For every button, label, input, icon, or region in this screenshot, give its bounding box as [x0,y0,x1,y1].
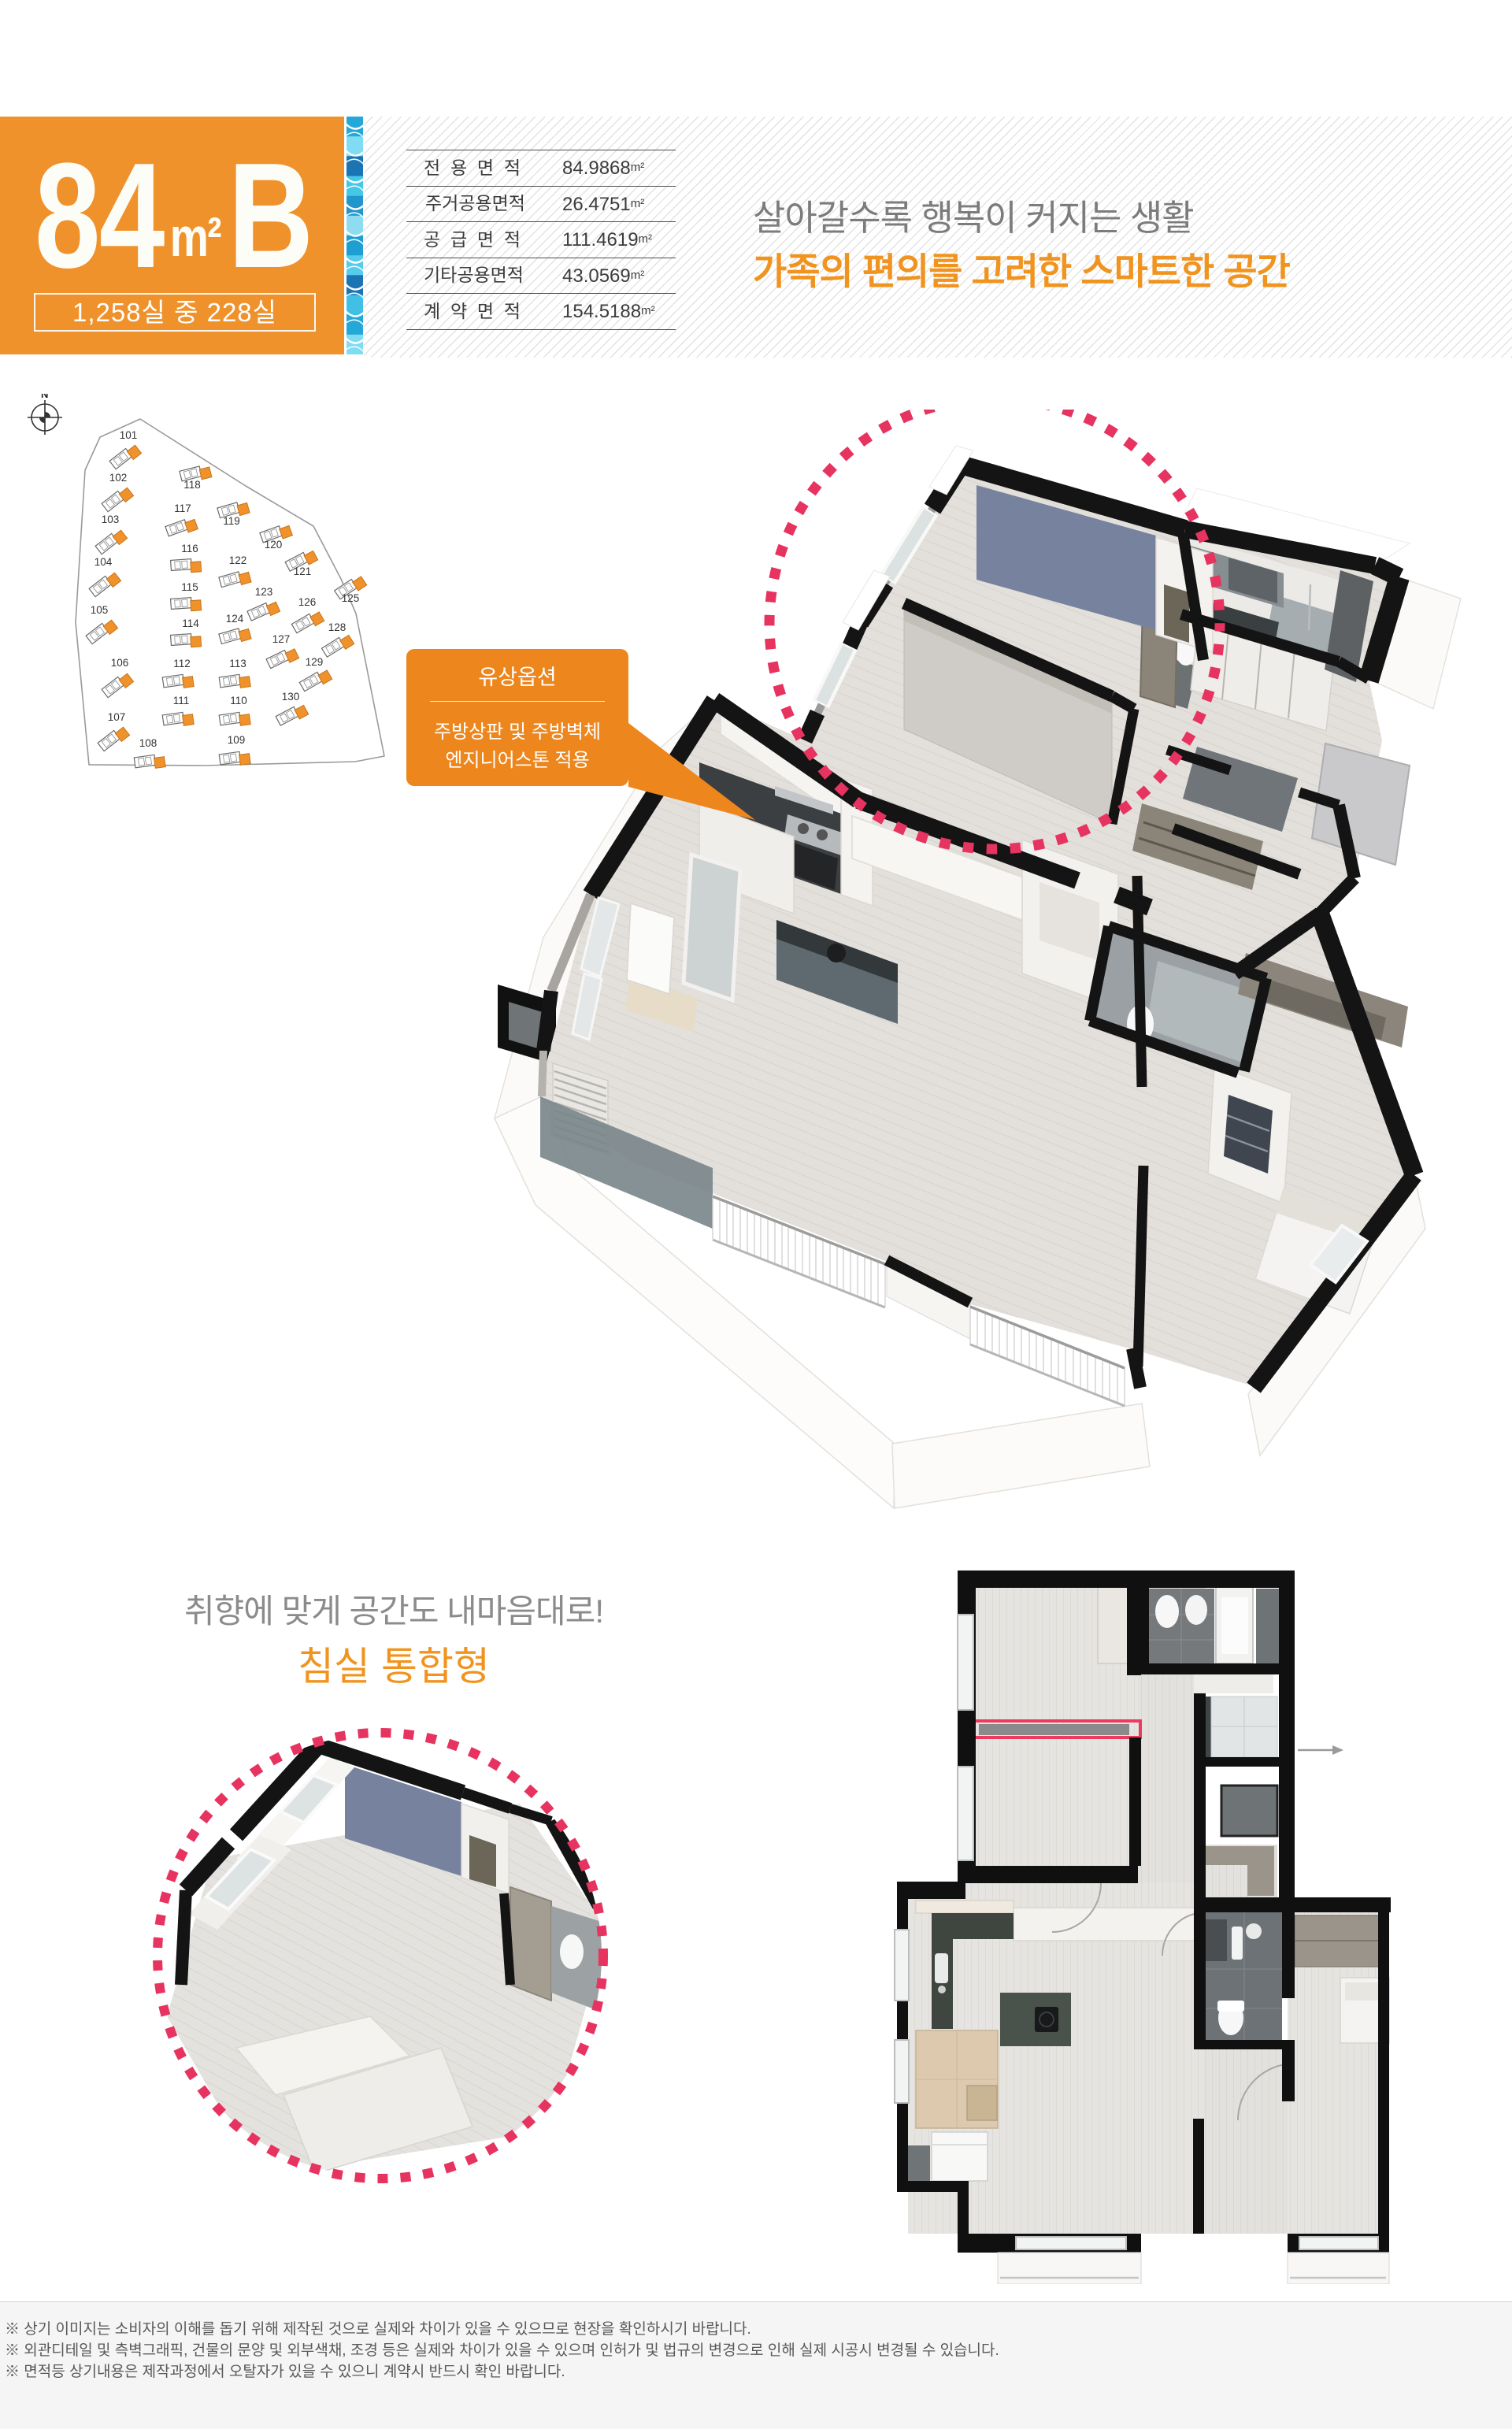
svg-text:119: 119 [223,515,240,527]
svg-text:130: 130 [282,691,300,703]
svg-text:108: 108 [139,737,157,749]
svg-text:109: 109 [228,734,246,746]
svg-text:101: 101 [120,429,138,441]
svg-text:106: 106 [111,657,129,669]
svg-text:115: 115 [181,581,198,593]
svg-text:120: 120 [265,539,283,551]
svg-text:104: 104 [94,556,113,568]
svg-text:116: 116 [181,543,198,554]
svg-text:114: 114 [182,617,199,629]
svg-text:110: 110 [230,695,247,706]
svg-text:122: 122 [229,554,247,566]
svg-text:112: 112 [173,658,191,669]
svg-text:111: 111 [173,695,190,706]
svg-text:113: 113 [229,658,246,669]
svg-text:126: 126 [298,596,317,608]
svg-text:123: 123 [255,586,273,598]
svg-text:103: 103 [102,514,120,525]
svg-text:N: N [41,394,48,400]
svg-text:127: 127 [272,633,291,645]
svg-text:117: 117 [174,502,191,514]
svg-text:129: 129 [306,656,324,668]
svg-text:118: 118 [183,479,201,491]
svg-text:107: 107 [108,711,126,723]
svg-text:124: 124 [226,613,244,625]
svg-text:105: 105 [91,604,109,616]
svg-text:125: 125 [342,592,360,604]
svg-text:128: 128 [328,621,346,633]
svg-text:102: 102 [109,472,128,484]
svg-text:121: 121 [294,566,312,577]
